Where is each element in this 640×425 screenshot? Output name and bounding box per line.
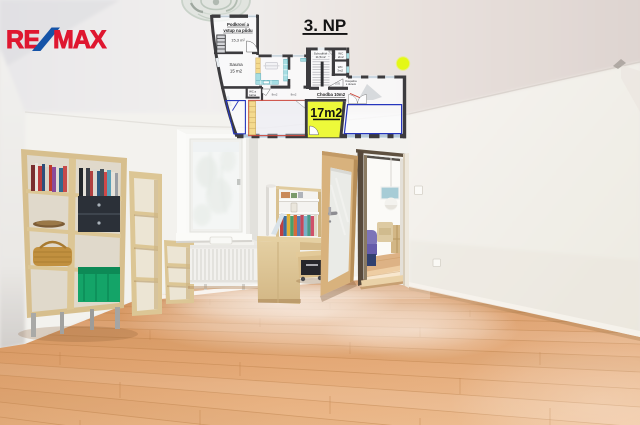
svg-text:vstup na půdu: vstup na půdu — [223, 28, 253, 33]
svg-text:8m2: 8m2 — [291, 93, 297, 97]
svg-text:Chodba 10m2: Chodba 10m2 — [317, 92, 346, 97]
svg-text:MAX: MAX — [53, 26, 107, 54]
svg-text:17m2: 17m2 — [310, 106, 342, 120]
svg-text:2m2: 2m2 — [338, 55, 344, 59]
svg-text:11,5m2: 11,5m2 — [315, 55, 325, 59]
svg-text:3m2: 3m2 — [337, 68, 343, 72]
svg-text:15 m2: 15 m2 — [230, 69, 243, 74]
svg-text:0,05: 0,05 — [335, 81, 341, 85]
svg-text:15,3 m²: 15,3 m² — [231, 38, 245, 43]
svg-text:šatna: šatna — [249, 93, 256, 97]
svg-text:Sauna: Sauna — [229, 62, 243, 67]
svg-text:Podkroví a: Podkroví a — [227, 22, 250, 27]
svg-text:3. NP: 3. NP — [304, 16, 347, 35]
svg-text:s oknem: s oknem — [346, 82, 357, 86]
svg-text:8m2: 8m2 — [272, 93, 278, 97]
